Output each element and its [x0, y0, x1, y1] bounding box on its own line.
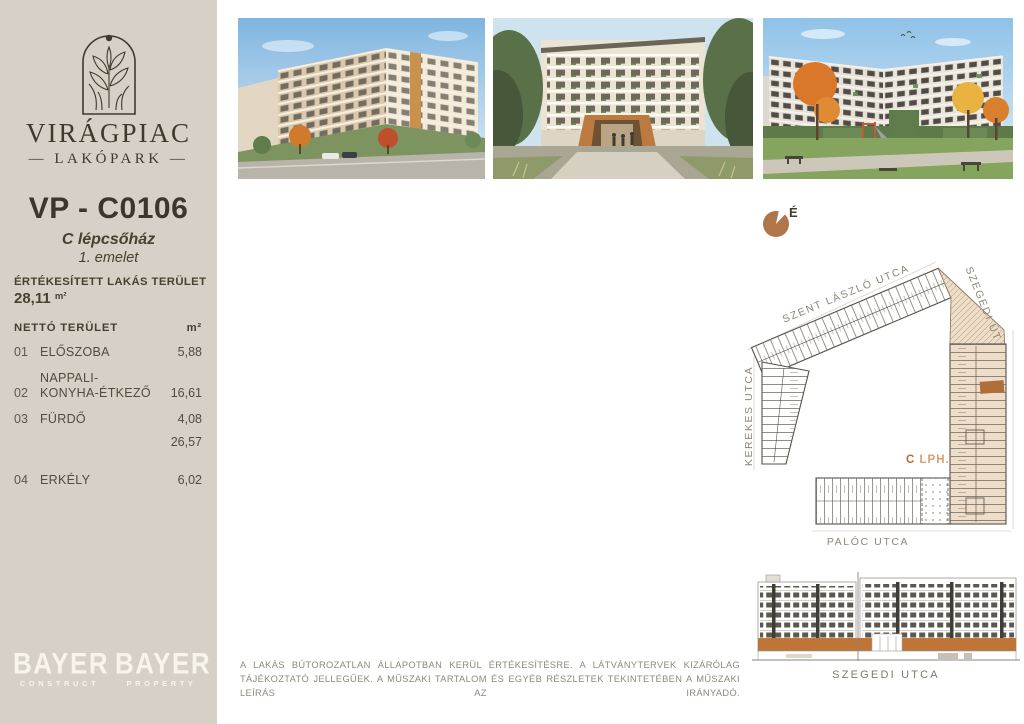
site-plan-drawing: [735, 195, 1024, 540]
apartment-location-marker: [980, 380, 1005, 394]
building-render-illustration: [493, 18, 753, 179]
sold-area-label: ÉRTÉKESÍTETT LAKÁS TERÜLET: [14, 276, 209, 288]
table-header: NETTÓ TERÜLET m²: [14, 322, 202, 334]
unit-staircase: C lépcsőház: [0, 231, 217, 249]
net-area-table: NETTÓ TERÜLET m² 01 ELŐSZOBA 5,88 02 NAP…: [14, 322, 202, 488]
brand-subtitle: — LAKÓPARK —: [0, 151, 217, 168]
unit-id: VP - C0106: [0, 192, 217, 226]
table-row: 03 FÜRDŐ 4,08: [14, 412, 202, 427]
plant-arch-logo-icon: [76, 24, 142, 116]
table-row: 02 NAPPALI-KONYHA-ÉTKEZŐ 16,61: [14, 371, 202, 401]
elevation-drawing: [750, 572, 1022, 665]
render-street-view: [238, 18, 485, 179]
bayer-property-logo: BAYER PROPERTY: [115, 650, 208, 688]
north-label: É: [789, 205, 798, 220]
elevation-street-label: SZEGEDI UTCA: [750, 669, 1022, 681]
north-arrow-icon: [763, 205, 790, 237]
plan-wing-c-highlight: [950, 344, 1006, 524]
render-entrance-view: [493, 18, 753, 179]
brochure-page: VIRÁGPIAC — LAKÓPARK — VP - C0106 C lépc…: [0, 0, 1024, 724]
table-row: 01 ELŐSZOBA 5,88: [14, 345, 202, 360]
building-render-illustration: [238, 18, 485, 179]
staircase-c-label: C LPH.: [906, 454, 950, 466]
developer-logos: BAYER CONSTRUCT BAYER PROPERTY: [13, 650, 208, 688]
plan-wing-south: [816, 478, 950, 524]
brand-title: VIRÁGPIAC: [0, 118, 217, 149]
legal-disclaimer: A LAKÁS BÚTOROZATLAN ÁLLAPOTBAN KERÜL ÉR…: [240, 659, 740, 701]
street-label-paloc: PALÓC UTCA: [813, 536, 923, 548]
table-row-balcony: 04 ERKÉLY 6,02: [14, 473, 202, 488]
sold-area-value: 28,11 m²: [14, 290, 67, 307]
sidebar: VIRÁGPIAC — LAKÓPARK — VP - C0106 C lépc…: [0, 0, 217, 724]
plan-wing-west: [762, 362, 809, 464]
sold-area-unit: m²: [55, 291, 67, 302]
table-header-label: NETTÓ TERÜLET: [14, 322, 118, 334]
table-subtotal: 26,57: [14, 435, 202, 449]
bayer-construct-logo: BAYER CONSTRUCT: [13, 650, 106, 688]
render-courtyard-view: [763, 18, 1013, 179]
brand-logo: [0, 24, 217, 121]
table-header-unit: m²: [187, 322, 202, 334]
building-render-illustration: [763, 18, 1013, 179]
unit-floor: 1. emelet: [0, 250, 217, 266]
street-label-kerekes: KEREKES UTCA: [743, 361, 755, 471]
